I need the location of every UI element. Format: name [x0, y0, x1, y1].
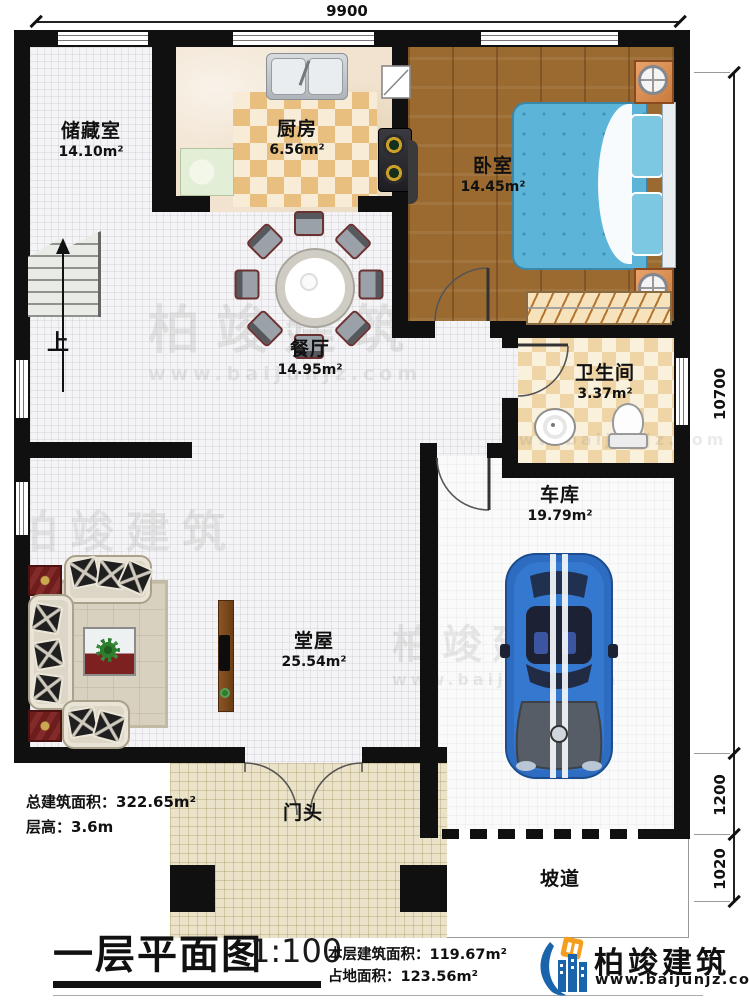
window-kitchen-top	[233, 30, 374, 47]
label-garage: 车库 19.79m²	[500, 484, 620, 525]
window-left-1	[14, 360, 30, 418]
garage-door-dashed	[442, 829, 647, 839]
dining-chair-w	[235, 270, 260, 300]
wall-left-1	[14, 30, 30, 360]
plan-title: 一层平面图	[53, 922, 263, 980]
end-table-bottom	[28, 710, 62, 742]
bed-pillow-bottom	[630, 192, 664, 256]
dim-ext	[694, 753, 730, 754]
stairs-direction-line	[62, 252, 64, 392]
window-bedroom-top	[481, 30, 618, 47]
toilet-tank	[608, 433, 648, 449]
tv-plant	[220, 688, 230, 698]
title-areas: 本层建筑面积：119.67m² 占地面积：123.56m²	[328, 944, 507, 988]
bathroom-sink-drain	[551, 423, 555, 427]
car	[500, 552, 618, 780]
dining-chair-n	[294, 211, 324, 236]
kitchen-fridge	[180, 148, 234, 196]
label-porch: 门头	[243, 802, 363, 826]
stairs-arrowhead	[56, 238, 70, 254]
plan-notes: 总建筑面积：322.65m² 层高：3.6m	[26, 790, 196, 840]
wall-bottom-1	[14, 747, 245, 763]
floor-plan: 柏竣建筑 www.baijunjz.com 柏竣建筑 柏竣建筑 www.baij…	[0, 0, 750, 1006]
dim-ext	[694, 834, 730, 835]
bed-pillow-top	[630, 114, 664, 178]
floor-area-line: 本层建筑面积：119.67m²	[328, 944, 507, 966]
wall-corridor-bottom-right	[487, 443, 502, 458]
wall-corridor-bottom-left	[420, 443, 437, 458]
label-bedroom: 卧室 14.45m²	[433, 155, 553, 196]
label-storage: 储藏室 14.10m²	[31, 120, 151, 161]
bathroom-sink	[534, 408, 576, 446]
stove-burner-bottom	[383, 162, 405, 184]
porch-pillar-right	[400, 865, 447, 912]
wall-kitchen-bottom-left	[152, 196, 210, 212]
label-bathroom: 卫生间 3.37m²	[540, 362, 670, 403]
total-area-note: 总建筑面积：322.65m²	[26, 790, 196, 815]
lamp-top	[638, 65, 668, 95]
wall-top-2	[148, 30, 233, 47]
label-ramp: 坡道	[500, 868, 620, 892]
window-left-2	[14, 482, 30, 535]
porch-pillar-left	[170, 865, 215, 912]
kitchen-sink-basin-right	[308, 58, 343, 95]
wall-bedroom-bottom-left	[392, 321, 435, 338]
wall-right-1	[674, 30, 690, 358]
garage-corner-right	[647, 829, 690, 839]
bedroom-tv	[408, 140, 418, 204]
brand-website: www.baijunjz.com	[595, 972, 750, 988]
end-table-top	[28, 565, 62, 596]
bed-headboard	[662, 102, 676, 268]
dim-ext	[694, 72, 730, 73]
label-kitchen: 厨房 6.56m²	[237, 118, 357, 159]
title-underline	[53, 981, 321, 988]
dim-width-label: 9900	[317, 2, 377, 20]
label-hall: 堂屋 25.54m²	[254, 630, 374, 671]
wall-bedroom-left	[392, 47, 408, 338]
dining-chair-e	[359, 270, 384, 300]
wall-top-3	[374, 30, 481, 47]
dining-table-center	[300, 273, 318, 291]
wall-storage-kitchen	[152, 47, 176, 212]
wall-right-2	[674, 425, 690, 839]
stairs-up-label: 上	[36, 330, 80, 358]
wall-bathroom-left-upper	[502, 321, 518, 348]
sofa-cushion-6	[31, 672, 64, 705]
wardrobe	[526, 291, 672, 325]
dim-right-line	[733, 72, 735, 901]
dim-height-mid: 1200	[711, 765, 729, 825]
dim-top-line	[36, 21, 680, 23]
sofa-cushion-5	[32, 638, 66, 672]
dim-height-total: 10700	[711, 364, 729, 424]
sofa-cushion-4	[30, 602, 64, 636]
tv-panel	[219, 635, 230, 671]
title-baseline	[53, 995, 703, 996]
brand-logo-icon	[536, 934, 592, 998]
footprint-line: 占地面积：123.56m²	[328, 966, 507, 988]
label-dining: 餐厅 14.95m²	[250, 338, 370, 379]
wall-hall-garage	[420, 458, 438, 838]
wall-dining-hall-stub	[14, 442, 192, 458]
floor-height-note: 层高：3.6m	[26, 815, 196, 840]
dim-ext	[694, 901, 730, 902]
wall-bathroom-bottom	[502, 463, 674, 478]
window-storage-top	[58, 30, 148, 47]
ramp-right-edge	[688, 839, 689, 937]
dim-height-low: 1020	[711, 839, 729, 899]
coffee-table-plant	[96, 638, 120, 662]
window-bathroom-right	[674, 358, 690, 425]
stove-burner-top	[383, 134, 405, 156]
